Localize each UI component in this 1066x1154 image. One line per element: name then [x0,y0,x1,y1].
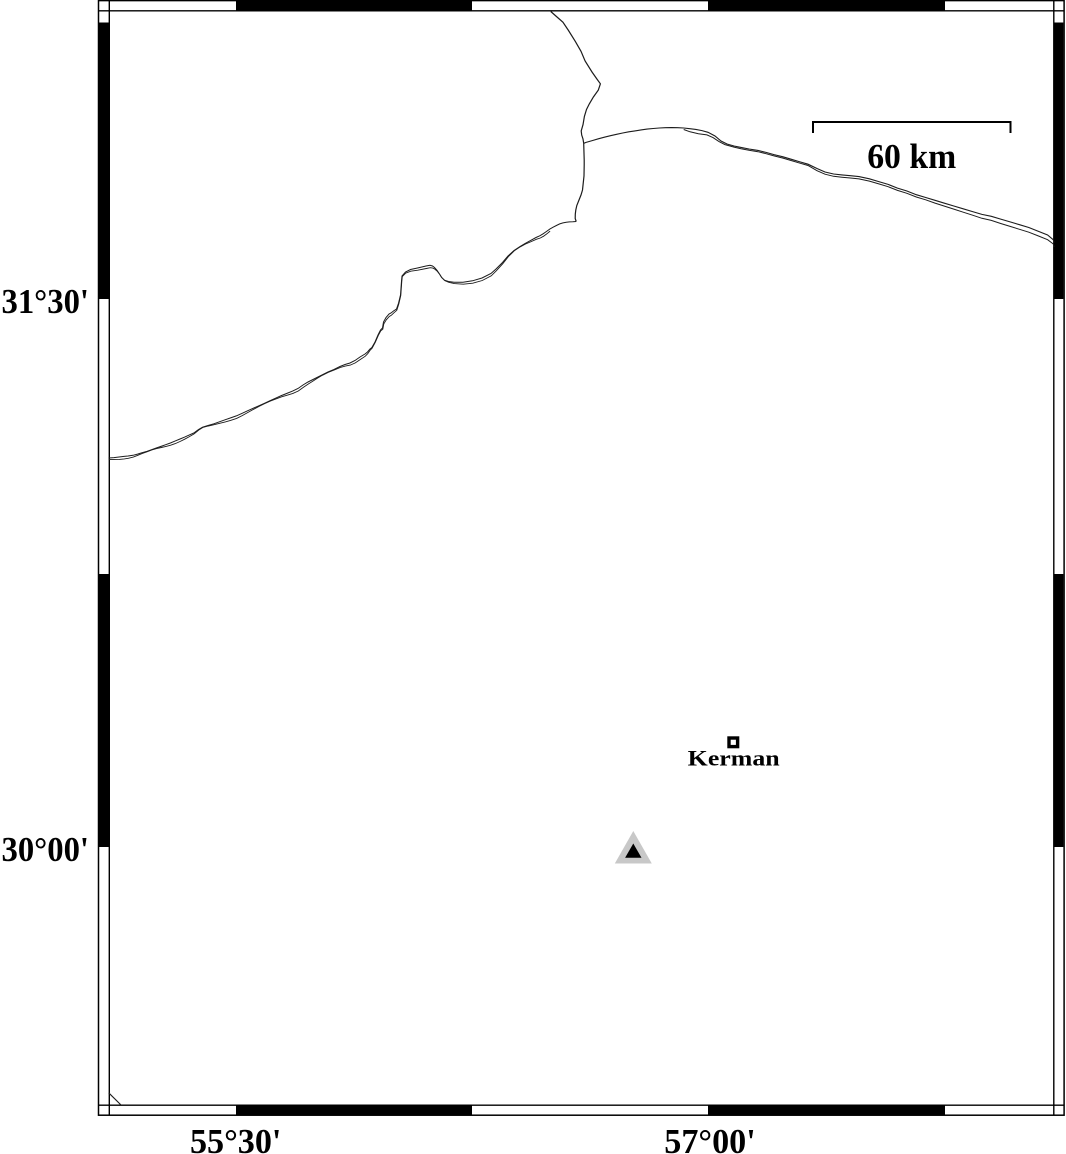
svg-text:31°30': 31°30' [2,282,90,321]
svg-text:30°00': 30°00' [2,830,90,869]
svg-text:55°30': 55°30' [190,1122,282,1154]
svg-text:60 km: 60 km [867,137,956,176]
svg-text:57°00': 57°00' [664,1122,756,1154]
svg-text:Kerman: Kerman [688,746,781,771]
